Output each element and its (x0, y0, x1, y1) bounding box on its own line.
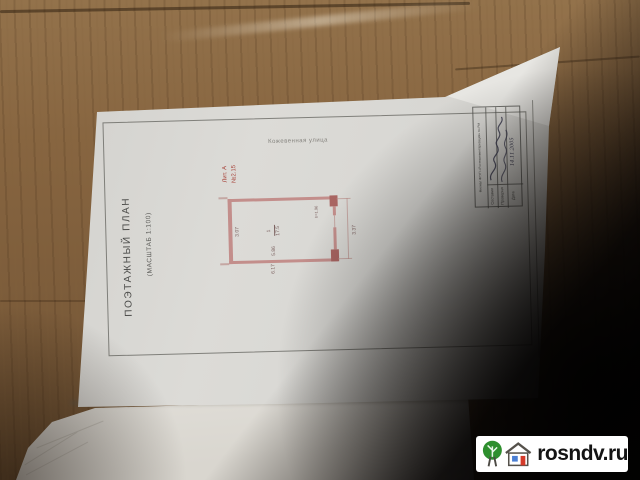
room-area: 17.5 (276, 226, 282, 236)
dim-opening: h=1.96 (314, 206, 319, 218)
wood-seam (0, 300, 90, 302)
dim-width-outer: 3.37 (352, 225, 358, 235)
stamp-table: Филиал ФГУП «Ростехинвентаризация» по РМ… (472, 105, 523, 207)
dim-height-outer: 6.17 (271, 264, 277, 274)
room-number: 1 (267, 230, 273, 233)
watermark-text: rosndv.ru (537, 442, 628, 466)
watermark-badge: rosndv.ru (476, 436, 628, 472)
signature-scribbles (484, 110, 512, 187)
stamp-row-label: Дата (511, 191, 516, 200)
stamp-row-label: Составил (490, 188, 495, 205)
wall-bottom-segment (333, 227, 337, 249)
drawing-frame-outer-line (532, 100, 540, 358)
dim-width-inner: 3.07 (235, 227, 241, 237)
dim-height-inner: 5.86 (272, 246, 278, 256)
house-icon (504, 440, 532, 468)
dim-extension (218, 197, 227, 199)
photo-scene: ПОЭТАЖНЫЙ ПЛАН (МАСШТАБ 1:100) Кожевенна… (0, 0, 640, 480)
wall-corner-block (329, 195, 337, 206)
wall-bottom-segment (333, 206, 336, 215)
red-mark-number: №2.15 (231, 165, 238, 183)
wall-corner-block (331, 249, 339, 261)
tree-icon (481, 439, 504, 469)
room-label: 1 17.5 (267, 221, 282, 241)
drawing-frame (102, 111, 532, 356)
red-mark-lit: Лит. А (222, 166, 229, 183)
dim-extension (220, 263, 229, 265)
stamp-org: Филиал ФГУП «Ростехинвентаризация» по РМ (478, 123, 483, 192)
stamp-row-label: Проверил (500, 187, 505, 205)
